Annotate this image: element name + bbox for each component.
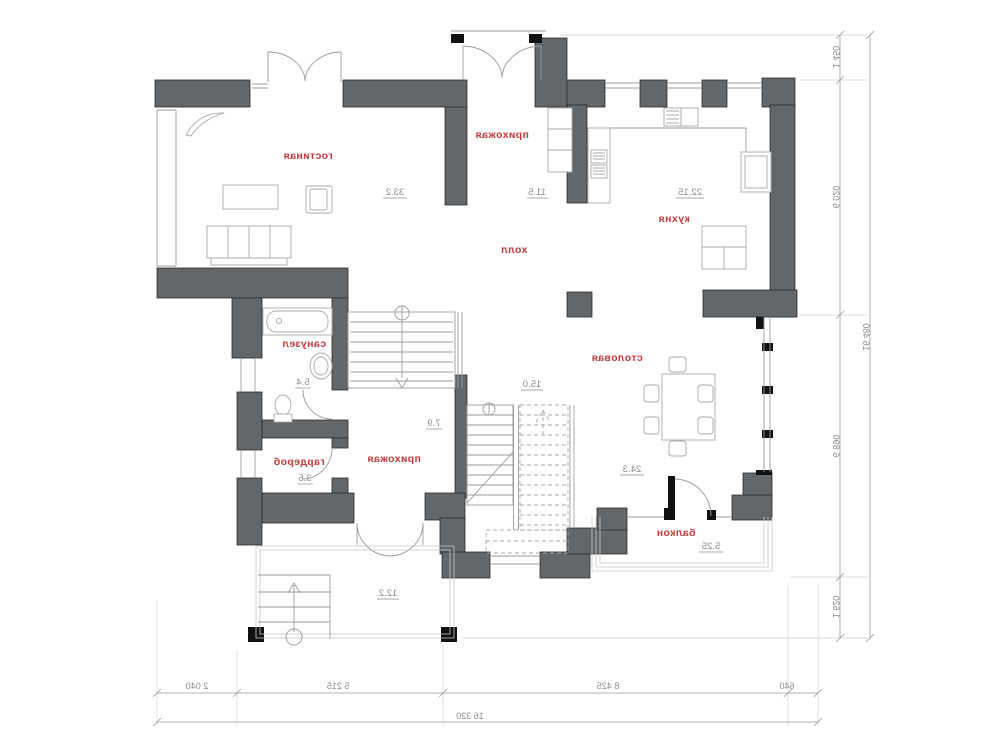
dim-bottom-3: 640 [779,681,794,691]
dryer [591,165,607,178]
room-area-bathroom: 5.4 [296,377,309,388]
room-label-dining: столовая [591,352,642,364]
room-area-balcony: 5.25 [702,541,721,552]
room-label-bathroom: санузел [282,338,326,350]
floor-plan-page: гостиная 33.2 прихожая 11.5 кухня 22.15 … [0,0,1000,750]
room-area-hall: 15.0 [523,379,542,390]
fireplace [186,113,224,136]
floor-plan-canvas: гостиная 33.2 прихожая 11.5 кухня 22.15 … [0,0,1000,750]
walls [155,38,797,578]
room-area-kitchen: 22.15 [678,187,702,198]
room-label-kitchen: кухня [658,213,690,225]
room-label-hall: холл [501,244,528,256]
room-area-wardrobe: 3.5 [298,473,311,484]
toilet [274,395,292,422]
room-label-hallway-bottom: прихожая [367,453,421,465]
dim-right-3: 1 620 [831,596,841,619]
sink [310,353,332,379]
armchair [306,186,332,213]
room-label-hallway-top: прихожая [475,129,529,141]
stairs-main [467,403,574,553]
room-label-balcony: балкон [656,527,695,539]
bathtub [263,308,332,335]
fridge [741,152,771,192]
dim-bottom-2: 8 425 [597,681,620,691]
living-furniture [186,113,332,265]
room-area-dining: 24.3 [623,464,642,475]
dim-bottom-1: 5 215 [327,681,350,691]
room-area-hallway-bottom: 7.9 [427,418,440,429]
sofa [207,226,291,265]
room-label-wardrobe: гардероб [273,456,324,468]
dim-bottom-total: 16 320 [456,711,484,721]
bathroom-fixtures [263,308,332,422]
dim-right-0: 1 450 [831,46,841,69]
stove [664,108,698,126]
dim-right-1: 6 020 [831,186,841,209]
dim-right-total: 16 480 [861,323,871,351]
room-area-hallway-top: 11.5 [528,187,546,198]
entry-closet [548,108,572,172]
kitchen-island [702,226,746,269]
stairs-hall [348,306,462,388]
washer [591,150,607,163]
room-area-living: 33.2 [386,187,405,198]
coffee-table [223,185,278,209]
dim-bottom-0: 2 040 [186,681,209,691]
dim-right-2: 6 890 [831,435,841,458]
dining-set [644,357,715,456]
room-label-living: гостиная [283,150,332,162]
terrace [256,546,454,645]
room-area-terrace: 12.2 [379,588,398,599]
